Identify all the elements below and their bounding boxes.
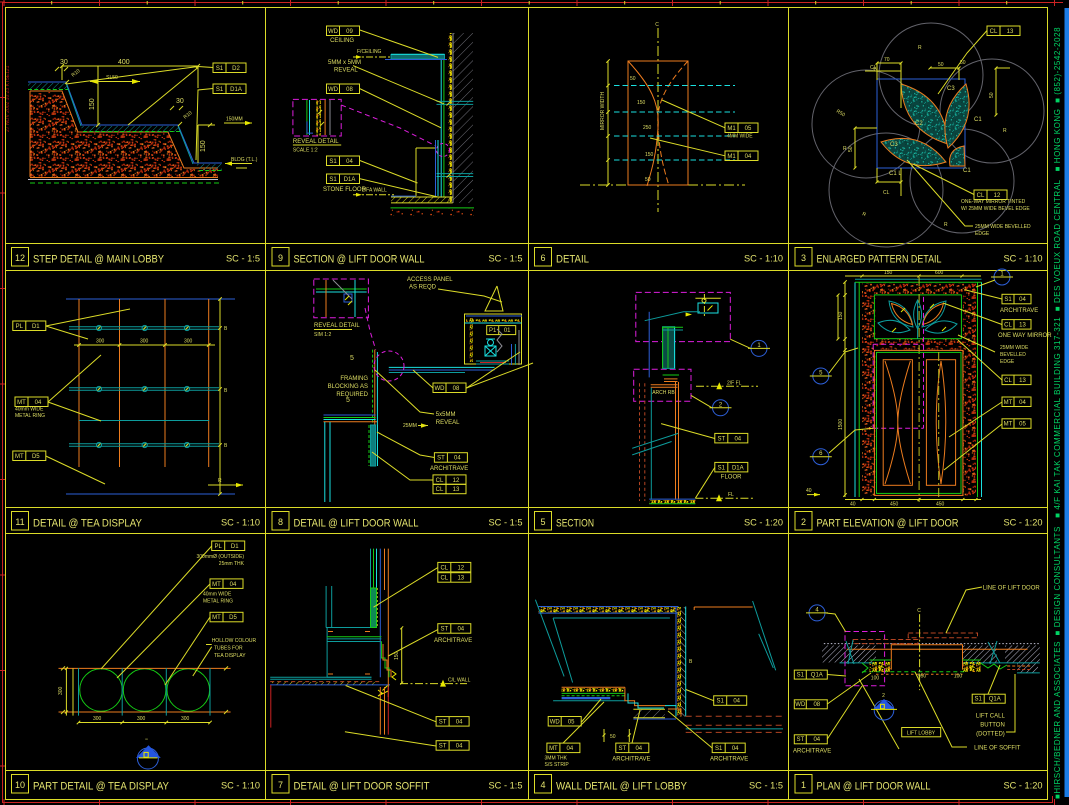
svg-text:25MM: 25MM (403, 423, 417, 429)
svg-text:D1A: D1A (344, 177, 356, 183)
svg-text:CL: CL (440, 576, 448, 582)
svg-text:C: C (917, 608, 921, 614)
svg-text:ACCESS PANEL: ACCESS PANEL (407, 277, 453, 283)
svg-text:D5: D5 (32, 454, 40, 460)
svg-text:F/CEILING: F/CEILING (357, 49, 382, 55)
svg-text:ARCHITRAVE: ARCHITRAVE (793, 749, 831, 755)
svg-text:C3: C3 (890, 142, 898, 148)
svg-text:300: 300 (93, 716, 102, 722)
svg-text:C3: C3 (947, 86, 955, 92)
svg-text:ST: ST (440, 627, 448, 633)
svg-text:STONE FLOOR: STONE FLOOR (323, 187, 367, 193)
svg-text:S1: S1 (715, 746, 723, 752)
svg-text:450: 450 (936, 502, 945, 508)
svg-text:SECTION: SECTION (556, 518, 594, 530)
svg-text:12: 12 (15, 253, 25, 263)
svg-text:13: 13 (453, 487, 460, 493)
svg-text:Q1A: Q1A (989, 697, 1001, 703)
svg-text:ARCHITRAVE: ARCHITRAVE (710, 757, 748, 763)
svg-text:2: 2 (801, 517, 806, 527)
svg-text:150: 150 (884, 270, 893, 276)
svg-text:ONE-WAY MIRROR TINTED: ONE-WAY MIRROR TINTED (961, 199, 1026, 205)
svg-text:BEVELLED: BEVELLED (1000, 352, 1026, 358)
svg-text:C1 L: C1 L (889, 171, 902, 177)
svg-text:SECTION @ LIFT DOOR WALL: SECTION @ LIFT DOOR WALL (294, 254, 425, 266)
svg-text:C/L WALL: C/L WALL (448, 678, 471, 684)
svg-text:MT: MT (15, 454, 24, 460)
svg-text:SIM 1:2: SIM 1:2 (314, 332, 331, 338)
svg-text:ST: ST (717, 436, 725, 442)
svg-text:8: 8 (278, 517, 283, 527)
svg-text:S1: S1 (216, 66, 224, 72)
svg-text:S1: S1 (1004, 297, 1012, 303)
svg-text:40: 40 (850, 502, 856, 508)
svg-text:SC - 1:5: SC - 1:5 (489, 254, 523, 264)
svg-text:600: 600 (935, 270, 944, 276)
svg-text:ST: ST (796, 737, 804, 743)
svg-text:150: 150 (645, 152, 654, 158)
svg-text:C1: C1 (974, 117, 982, 123)
svg-text:D1: D1 (32, 324, 40, 330)
svg-text:AS REQD: AS REQD (409, 285, 437, 291)
svg-text:08: 08 (453, 386, 460, 392)
svg-text:BLDG (T.L.): BLDG (T.L.) (231, 157, 258, 163)
svg-text:13: 13 (1007, 29, 1014, 35)
svg-text:11: 11 (15, 517, 24, 527)
svg-text:WALL DETAIL @ LIFT LOBBY: WALL DETAIL @ LIFT LOBBY (556, 781, 688, 793)
svg-text:12: 12 (994, 193, 1001, 199)
svg-text:S1: S1 (717, 699, 725, 705)
svg-text:25mm THK: 25mm THK (219, 561, 245, 567)
svg-text:MT: MT (549, 746, 558, 752)
svg-text:04: 04 (1019, 297, 1026, 303)
svg-text:CL: CL (870, 65, 877, 71)
svg-text:40mm WIDE: 40mm WIDE (15, 407, 44, 413)
svg-text:WD: WD (550, 719, 561, 725)
svg-text:DETAIL @ LIFT DOOR WALL: DETAIL @ LIFT DOOR WALL (294, 518, 419, 530)
svg-text:D5: D5 (229, 615, 237, 621)
svg-text:5x5MM: 5x5MM (436, 412, 456, 418)
svg-text:WD: WD (328, 87, 339, 93)
svg-text:'': '' (145, 739, 147, 745)
svg-text:SCALE 1:2: SCALE 1:2 (293, 148, 318, 154)
svg-text:MT: MT (1004, 422, 1013, 428)
svg-text:CEILING: CEILING (330, 38, 354, 44)
svg-text:DETAIL @ LIFT DOOR SOFFIT: DETAIL @ LIFT DOOR SOFFIT (294, 781, 430, 793)
svg-text:50: 50 (938, 62, 944, 68)
svg-text:PL: PL (215, 544, 223, 550)
svg-text:04: 04 (230, 582, 237, 588)
svg-text:METAL RING: METAL RING (15, 413, 45, 419)
svg-text:BLOCKING AS: BLOCKING AS (328, 384, 368, 390)
svg-text:ARCHITRAVE: ARCHITRAVE (1000, 308, 1038, 314)
svg-text:05: 05 (745, 126, 752, 132)
svg-text:STEP DETAIL @ MAIN LOBBY: STEP DETAIL @ MAIN LOBBY (33, 254, 165, 266)
svg-text:950: 950 (918, 674, 927, 680)
svg-text:40: 40 (806, 488, 812, 494)
svg-text:MT: MT (212, 582, 221, 588)
svg-text:REVEAL DETAIL: REVEAL DETAIL (293, 139, 339, 145)
svg-text:SC - 1:10: SC - 1:10 (744, 254, 783, 264)
svg-text:04: 04 (567, 746, 574, 752)
svg-text:SC - 1:5: SC - 1:5 (226, 254, 260, 264)
svg-text:50: 50 (989, 92, 995, 98)
svg-text:100: 100 (871, 676, 880, 682)
svg-text:ST: ST (439, 720, 447, 726)
svg-text:5: 5 (346, 397, 350, 404)
svg-text:MT: MT (17, 400, 26, 406)
svg-text:FLOOR: FLOOR (721, 475, 742, 481)
svg-text:WD: WD (328, 29, 339, 35)
svg-text:REVEAL DETAIL: REVEAL DETAIL (314, 323, 360, 329)
svg-text:SC - 1:5: SC - 1:5 (489, 781, 523, 791)
svg-text:ST: ST (618, 746, 626, 752)
svg-text:1: 1 (801, 780, 806, 790)
svg-text:R: R (944, 222, 948, 228)
svg-text:100: 100 (954, 674, 963, 680)
svg-text:M1: M1 (727, 126, 736, 132)
svg-text:70: 70 (884, 57, 890, 63)
svg-text:REVEAL: REVEAL (436, 420, 460, 426)
svg-text:CL: CL (990, 29, 998, 35)
svg-text:W/ 25MM WIDE BEVEL EDGE: W/ 25MM WIDE BEVEL EDGE (961, 206, 1030, 212)
svg-text:4: 4 (540, 780, 545, 790)
svg-text:SC - 1:20: SC - 1:20 (1004, 518, 1043, 528)
svg-text:METAL RING: METAL RING (203, 599, 233, 605)
svg-text:MT: MT (212, 615, 221, 621)
svg-text:13: 13 (1019, 378, 1026, 384)
svg-text:25MM WIDE: 25MM WIDE (1000, 345, 1029, 351)
svg-text:(DOTTED): (DOTTED) (976, 732, 1005, 738)
svg-text:SC - 1:10: SC - 1:10 (1004, 254, 1043, 264)
svg-text:FL: FL (728, 492, 734, 498)
svg-text:08: 08 (813, 702, 820, 708)
svg-text:13: 13 (1019, 323, 1026, 329)
svg-text:TUBES FOR: TUBES FOR (214, 646, 243, 652)
svg-text:ENLARGED PATTERN DETAIL: ENLARGED PATTERN DETAIL (817, 254, 942, 266)
svg-text:LIFT CALL: LIFT CALL (976, 714, 1006, 720)
svg-text:LINE OF LIFT DOOR: LINE OF LIFT DOOR (983, 586, 1041, 592)
svg-text:6: 6 (540, 253, 545, 263)
svg-text:D2: D2 (232, 66, 240, 72)
svg-text:C: C (655, 22, 659, 28)
svg-text:5: 5 (350, 355, 354, 362)
svg-text:30: 30 (60, 59, 68, 66)
svg-text:PL: PL (16, 324, 24, 330)
svg-text:9: 9 (278, 253, 283, 263)
svg-text:2/FA WALL: 2/FA WALL (362, 188, 387, 194)
svg-text:CL: CL (440, 565, 448, 571)
svg-text:04: 04 (813, 737, 820, 743)
svg-text:ARCHITRAVE: ARCHITRAVE (612, 757, 650, 763)
svg-text:CL: CL (436, 478, 444, 484)
svg-text:400: 400 (118, 59, 130, 66)
svg-text:SC - 1:10: SC - 1:10 (221, 518, 260, 528)
svg-text:M1: M1 (727, 154, 736, 160)
svg-text:300: 300 (137, 716, 146, 722)
svg-text:40mm WIDE: 40mm WIDE (203, 592, 232, 598)
svg-text:SC - 1:10: SC - 1:10 (221, 781, 260, 791)
svg-text:04: 04 (1019, 400, 1026, 406)
svg-text:FRAMING: FRAMING (340, 376, 368, 382)
svg-text:30: 30 (176, 98, 184, 105)
svg-text:04: 04 (734, 436, 741, 442)
svg-text:04: 04 (745, 154, 752, 160)
svg-text:ARCHITRAVE: ARCHITRAVE (434, 638, 472, 644)
svg-text:MT: MT (1004, 400, 1013, 406)
svg-text:R: R (843, 146, 847, 152)
svg-text:■HIRSCH/BEDNER AND ASSOCIATES: ■HIRSCH/BEDNER AND ASSOCIATES ■ DESIGN C… (1053, 27, 1062, 799)
svg-text:P1: P1 (489, 328, 497, 334)
svg-text:08: 08 (346, 87, 353, 93)
svg-text:SC - 1:5: SC - 1:5 (489, 518, 523, 528)
svg-text:300: 300 (181, 716, 190, 722)
svg-text:04: 04 (456, 720, 463, 726)
svg-text:3: 3 (801, 253, 806, 263)
svg-text:REQUIRED: REQUIRED (336, 392, 368, 398)
svg-text:LIFT LOBBY: LIFT LOBBY (907, 731, 936, 737)
svg-text:12: 12 (457, 565, 464, 571)
svg-text:04: 04 (346, 159, 353, 165)
svg-text:SC - 1:5: SC - 1:5 (749, 781, 783, 791)
svg-text:S1: S1 (216, 87, 224, 93)
svg-text:300: 300 (140, 339, 149, 345)
svg-text:S/S STRIP: S/S STRIP (545, 762, 570, 768)
svg-text:12: 12 (453, 478, 460, 484)
svg-text:13: 13 (457, 576, 464, 582)
svg-text:D1: D1 (231, 544, 239, 550)
svg-text:01: 01 (504, 328, 511, 334)
svg-text:300: 300 (58, 686, 64, 695)
svg-text:5: 5 (540, 517, 545, 527)
svg-text:04: 04 (457, 627, 464, 633)
svg-text:300: 300 (96, 339, 105, 345)
svg-text:REVEAL: REVEAL (334, 68, 358, 74)
svg-text:04: 04 (454, 456, 461, 462)
svg-text:05: 05 (568, 719, 575, 725)
svg-text:CL: CL (883, 190, 890, 196)
svg-text:150: 150 (838, 311, 844, 320)
svg-text:PART ELEVATION @ LIFT DOOR: PART ELEVATION @ LIFT DOOR (817, 518, 959, 530)
svg-text:R: R (1003, 128, 1007, 134)
svg-text:25MM WIDE BEVELLED: 25MM WIDE BEVELLED (975, 224, 1031, 230)
svg-text:50: 50 (848, 146, 854, 152)
svg-text:10: 10 (15, 780, 25, 790)
svg-text:D1A: D1A (732, 465, 744, 471)
svg-text:S1: S1 (329, 159, 337, 165)
svg-text:DETAIL @ TEA DISPLAY: DETAIL @ TEA DISPLAY (33, 518, 143, 530)
svg-text:EDGE: EDGE (975, 231, 990, 237)
svg-text:250: 250 (643, 125, 652, 131)
svg-text:50: 50 (630, 76, 636, 82)
svg-text:ARCHITRAVE: ARCHITRAVE (430, 466, 468, 472)
svg-text:C2: C2 (915, 121, 923, 127)
svg-text:CL: CL (1004, 323, 1012, 329)
svg-text:S1: S1 (718, 465, 726, 471)
svg-text:PLAN @ LIFT DOOR WALL: PLAN @ LIFT DOOR WALL (817, 781, 931, 793)
svg-text:2/F FL: 2/F FL (727, 381, 742, 387)
svg-text:SC - 1:20: SC - 1:20 (744, 518, 783, 528)
svg-text:S1: S1 (975, 697, 983, 703)
svg-text:LINE OF SOFFIT: LINE OF SOFFIT (974, 746, 1021, 752)
svg-text:D1A: D1A (230, 87, 242, 93)
svg-text:50: 50 (610, 734, 616, 740)
svg-text:R: R (918, 45, 922, 51)
svg-text:150MM: 150MM (226, 117, 243, 123)
svg-text:04: 04 (635, 746, 642, 752)
svg-text:Q1A: Q1A (811, 673, 823, 679)
svg-text:4MM WIDE: 4MM WIDE (727, 134, 753, 140)
svg-text:5MM x 5MM: 5MM x 5MM (328, 60, 361, 66)
svg-text:3MM THK: 3MM THK (545, 756, 568, 762)
svg-text:S1: S1 (797, 673, 805, 679)
svg-text:MIRROR WIDTH: MIRROR WIDTH (600, 92, 606, 130)
svg-text:ARCH RB: ARCH RB (652, 390, 675, 396)
svg-text:TEA DISPLAY: TEA DISPLAY (214, 653, 246, 659)
svg-text:PART DETAIL @ TEA DISPLAY: PART DETAIL @ TEA DISPLAY (33, 781, 170, 793)
svg-text:S1: S1 (329, 177, 337, 183)
svg-text:04: 04 (732, 746, 739, 752)
svg-text:BUTTON: BUTTON (980, 723, 1005, 729)
svg-text:SC - 1:20: SC - 1:20 (1004, 781, 1043, 791)
svg-text:04: 04 (733, 699, 740, 705)
svg-text:CL: CL (1004, 378, 1012, 384)
svg-text:300: 300 (184, 339, 193, 345)
svg-text:WD: WD (795, 702, 806, 708)
svg-text:50: 50 (645, 177, 651, 183)
svg-text:450: 450 (890, 502, 899, 508)
svg-text:DETAIL: DETAIL (556, 254, 589, 266)
svg-text:ONE WAY MIRROR: ONE WAY MIRROR (998, 333, 1052, 339)
svg-text:09: 09 (346, 29, 353, 35)
svg-text:C1: C1 (963, 168, 971, 174)
svg-text:EDGE: EDGE (1000, 359, 1015, 365)
svg-text:150: 150 (637, 100, 646, 106)
svg-text:2: 2 (882, 693, 885, 699)
svg-text:05: 05 (1019, 422, 1026, 428)
svg-text:CL: CL (436, 487, 444, 493)
svg-text:CL: CL (977, 193, 985, 199)
svg-text:04: 04 (35, 400, 42, 406)
svg-text:7: 7 (278, 780, 283, 790)
svg-text:150: 150 (200, 140, 207, 152)
svg-text:HOLLOW COLOUR: HOLLOW COLOUR (212, 638, 257, 644)
svg-text:ST: ST (439, 744, 447, 750)
svg-text:1500: 1500 (838, 419, 844, 430)
svg-text:ST: ST (437, 456, 445, 462)
svg-text:150: 150 (89, 98, 96, 110)
svg-text:04: 04 (456, 744, 463, 750)
svg-text:WD: WD (435, 386, 446, 392)
